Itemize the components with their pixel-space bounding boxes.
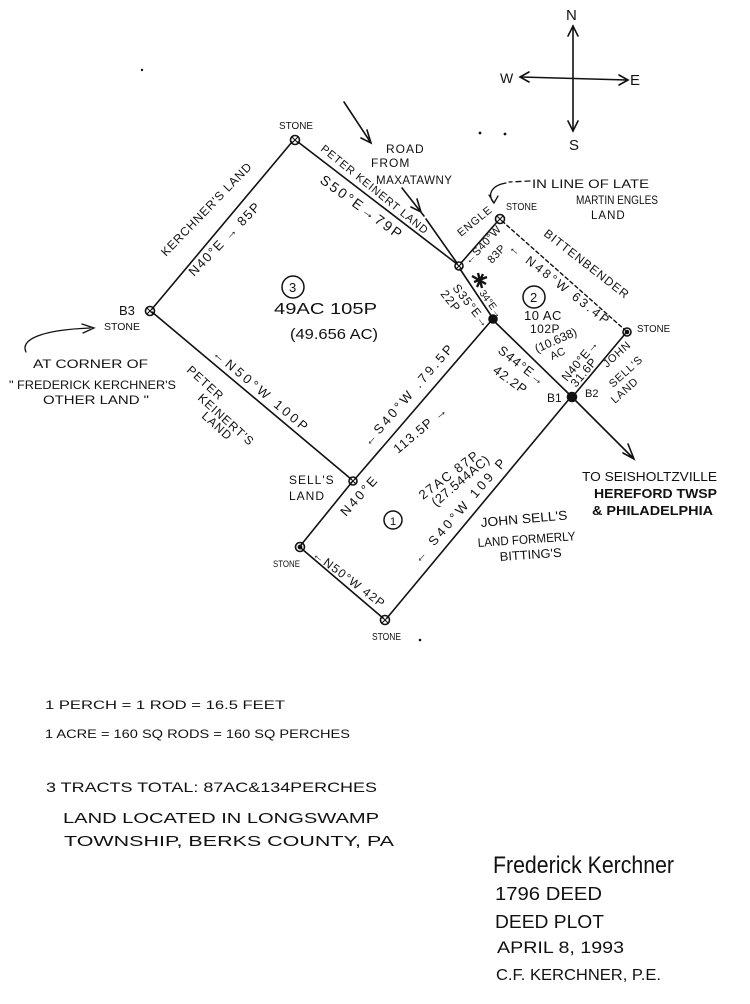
svg-text:MARTIN ENGLES: MARTIN ENGLES — [576, 195, 658, 207]
svg-text:3: 3 — [289, 280, 296, 295]
svg-text:STONE: STONE — [104, 321, 140, 333]
svg-text:1 ACRE = 160 SQ RODS = 160 SQ: 1 ACRE = 160 SQ RODS = 160 SQ PERCHES — [45, 727, 350, 741]
svg-text:B2: B2 — [585, 388, 598, 400]
svg-text:" FREDERICK KERCHNER'S: " FREDERICK KERCHNER'S — [9, 378, 176, 392]
svg-text:B3: B3 — [119, 303, 135, 318]
svg-text:LAND: LAND — [591, 210, 626, 222]
svg-text:IN LINE OF LATE: IN LINE OF LATE — [532, 179, 649, 191]
svg-text:STONE: STONE — [279, 121, 313, 132]
svg-text:STONE: STONE — [372, 632, 401, 643]
svg-text:1 PERCH = 1 ROD = 16.5 FEE: 1 PERCH = 1 ROD = 16.5 FEET — [45, 698, 286, 712]
svg-text:(49.656 AC): (49.656 AC) — [290, 327, 378, 343]
svg-text:C.F. KERCHNER, P.E.: C.F. KERCHNER, P.E. — [496, 967, 661, 984]
svg-text:APRIL 8, 1993: APRIL 8, 1993 — [497, 938, 624, 957]
svg-text:2: 2 — [530, 290, 537, 305]
svg-text:1: 1 — [390, 516, 396, 528]
svg-text:W: W — [500, 70, 514, 86]
svg-text:STONE: STONE — [637, 324, 670, 335]
svg-text:TO SEISHOLTZVILLE: TO SEISHOLTZVILLE — [582, 470, 717, 484]
svg-text:E: E — [630, 72, 640, 89]
svg-text:3 TRACTS TOTAL: 87AC&134PERCH: 3 TRACTS TOTAL: 87AC&134PERCHES — [46, 779, 377, 795]
svg-text:49AC 105P: 49AC 105P — [274, 301, 377, 318]
svg-text:STONE: STONE — [506, 201, 537, 213]
svg-text:OTHER LAND ": OTHER LAND " — [43, 393, 149, 407]
svg-text:LAND LOCATED IN LONGSWAMP: LAND LOCATED IN LONGSWAMP — [63, 810, 379, 827]
svg-text:B1: B1 — [547, 391, 562, 405]
svg-text:FROM: FROM — [371, 156, 410, 170]
svg-text:DEED PLOT: DEED PLOT — [495, 912, 604, 932]
svg-text:N: N — [566, 7, 577, 24]
svg-text:ROAD: ROAD — [386, 142, 425, 156]
svg-text:& PHILADELPHIA: & PHILADELPHIA — [592, 503, 714, 518]
svg-text:STONE: STONE — [273, 559, 300, 570]
svg-text:HEREFORD TWSP: HEREFORD TWSP — [594, 486, 717, 501]
svg-text:Frederick Kerchner: Frederick Kerchner — [493, 852, 674, 879]
svg-text:LAND: LAND — [289, 489, 325, 503]
svg-text:MAXATAWNY: MAXATAWNY — [376, 175, 452, 187]
svg-text:SELL'S: SELL'S — [289, 473, 335, 487]
svg-text:10 AC: 10 AC — [524, 308, 562, 323]
svg-text:1796 DEED: 1796 DEED — [495, 884, 602, 904]
svg-text:S: S — [569, 137, 579, 154]
svg-text:AT CORNER OF: AT CORNER OF — [33, 357, 148, 371]
svg-text:TOWNSHIP, BERKS COUNTY, PA: TOWNSHIP, BERKS COUNTY, PA — [64, 833, 394, 850]
